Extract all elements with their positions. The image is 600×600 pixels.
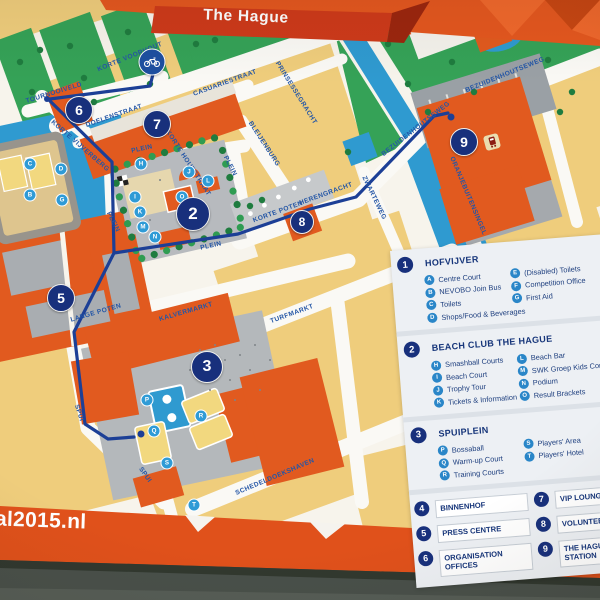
facility-letter-icon: N (518, 378, 529, 389)
map-marker-9: 9 (450, 128, 478, 156)
map-sign-photo: KORTE VOORHOUTTOURNOOIVELDDOELENSTRAATCA… (0, 0, 600, 600)
legend-section-1: 1HOFVIJVERACentre CourtBNEVOBO Join BusC… (395, 238, 600, 327)
legend-section-title: SPUIPLEIN (438, 425, 489, 439)
facility-marker-b: B (24, 189, 37, 202)
legend-place-label: BINNENHOF (435, 492, 529, 517)
facility-letter-icon: B (425, 287, 436, 298)
legend-place-5: 5PRESS CENTRE (416, 517, 531, 544)
legend-item-label: First Aid (526, 291, 553, 302)
legend-panel: 1HOFVIJVERACentre CourtBNEVOBO Join BusC… (390, 231, 600, 588)
legend-item-label: Result Brackets (533, 387, 585, 400)
facility-letter-icon: M (517, 366, 528, 377)
facility-letter-icon: H (431, 360, 442, 371)
legend-item-label: Beach Bar (530, 351, 565, 363)
facility-letter-icon: P (437, 445, 448, 456)
legend-item-label: Toilets (440, 299, 462, 310)
legend-place-7: 7VIP LOUNGE (533, 482, 600, 510)
map-marker-3: 3 (191, 351, 223, 383)
facility-letter-icon: L (516, 353, 527, 364)
legend-place-label: PRESS CENTRE (437, 517, 531, 542)
legend-item-label: Bossaball (451, 443, 484, 454)
facility-letter-icon: K (434, 398, 445, 409)
facility-marker-q: Q (148, 425, 161, 438)
facility-marker-i: I (129, 191, 142, 204)
facility-marker-l: L (202, 175, 215, 188)
legend-item-label: Podium (532, 377, 558, 388)
legend-place-number: 8 (535, 516, 551, 532)
legend-item-label: Training Courts (453, 466, 504, 479)
legend-place-number: 4 (414, 500, 430, 516)
facility-letter-icon: A (424, 275, 435, 286)
legend-place-9: 9THE HAGUE CENTRAL STATION (537, 532, 600, 569)
facility-letter-icon: E (510, 268, 521, 279)
facility-marker-k: K (134, 206, 147, 219)
legend-item-label: Tickets & Information (448, 392, 518, 406)
facility-marker-p: P (141, 394, 154, 407)
facility-marker-h: H (135, 158, 148, 171)
legend-place-number: 5 (416, 525, 432, 541)
facility-marker-n: N (149, 231, 162, 244)
facility-letter-icon: I (432, 373, 443, 384)
legend-section-title: HOFVIJVER (425, 254, 479, 268)
facility-marker-s: S (161, 457, 174, 470)
map-marker-7: 7 (143, 110, 171, 138)
facility-letter-icon: S (523, 438, 534, 449)
map-marker-8: 8 (290, 210, 314, 234)
facility-marker-g: G (56, 194, 69, 207)
facility-marker-m: M (137, 221, 150, 234)
facility-marker-r: R (195, 410, 208, 423)
map-marker-2: 2 (176, 197, 210, 231)
legend-place-8: 8VOLUNTEER HOME (535, 507, 600, 535)
facility-letter-icon: G (512, 293, 523, 304)
legend-place-label: ORGANISATION OFFICES (439, 542, 534, 576)
facility-letter-icon: T (524, 451, 535, 462)
legend-section-2: 2BEACH CLUB THE HAGUEHSmashball CourtsIB… (401, 323, 600, 412)
facility-marker-c: C (24, 158, 37, 171)
legend-place-number: 7 (533, 491, 549, 507)
legend-section-number: 3 (410, 426, 427, 443)
legend-place-6: 6ORGANISATION OFFICES (418, 542, 534, 578)
bicycle-parking-icon (139, 49, 166, 76)
facility-marker-d: D (55, 163, 68, 176)
facility-letter-icon: J (433, 385, 444, 396)
legend-place-label: VOLUNTEER HOME (556, 507, 600, 534)
facility-letter-icon: Q (438, 458, 449, 469)
map-marker-5: 5 (47, 284, 75, 312)
legend-place-number: 9 (537, 541, 553, 557)
legend-place-4: 4BINNENHOF (414, 492, 529, 519)
facility-letter-icon: O (519, 391, 530, 402)
sign-title: The Hague (203, 6, 289, 27)
legend-place-number: 6 (418, 550, 434, 566)
map-marker-6: 6 (65, 96, 93, 124)
facility-letter-icon: D (427, 313, 438, 324)
legend-section-number: 2 (403, 341, 420, 358)
facility-letter-icon: R (439, 470, 450, 481)
legend-section-number: 1 (397, 256, 414, 273)
legend-item-label: Players' Hotel (538, 448, 584, 461)
facility-marker-t: T (188, 499, 201, 512)
legend-place-label: THE HAGUE CENTRAL STATION (558, 532, 600, 568)
event-url: al2015.nl (0, 507, 87, 534)
facility-letter-icon: C (426, 300, 437, 311)
facility-marker-j: J (183, 166, 196, 179)
facility-letter-icon: F (511, 281, 522, 292)
legend-place-label: VIP LOUNGE (554, 482, 600, 509)
